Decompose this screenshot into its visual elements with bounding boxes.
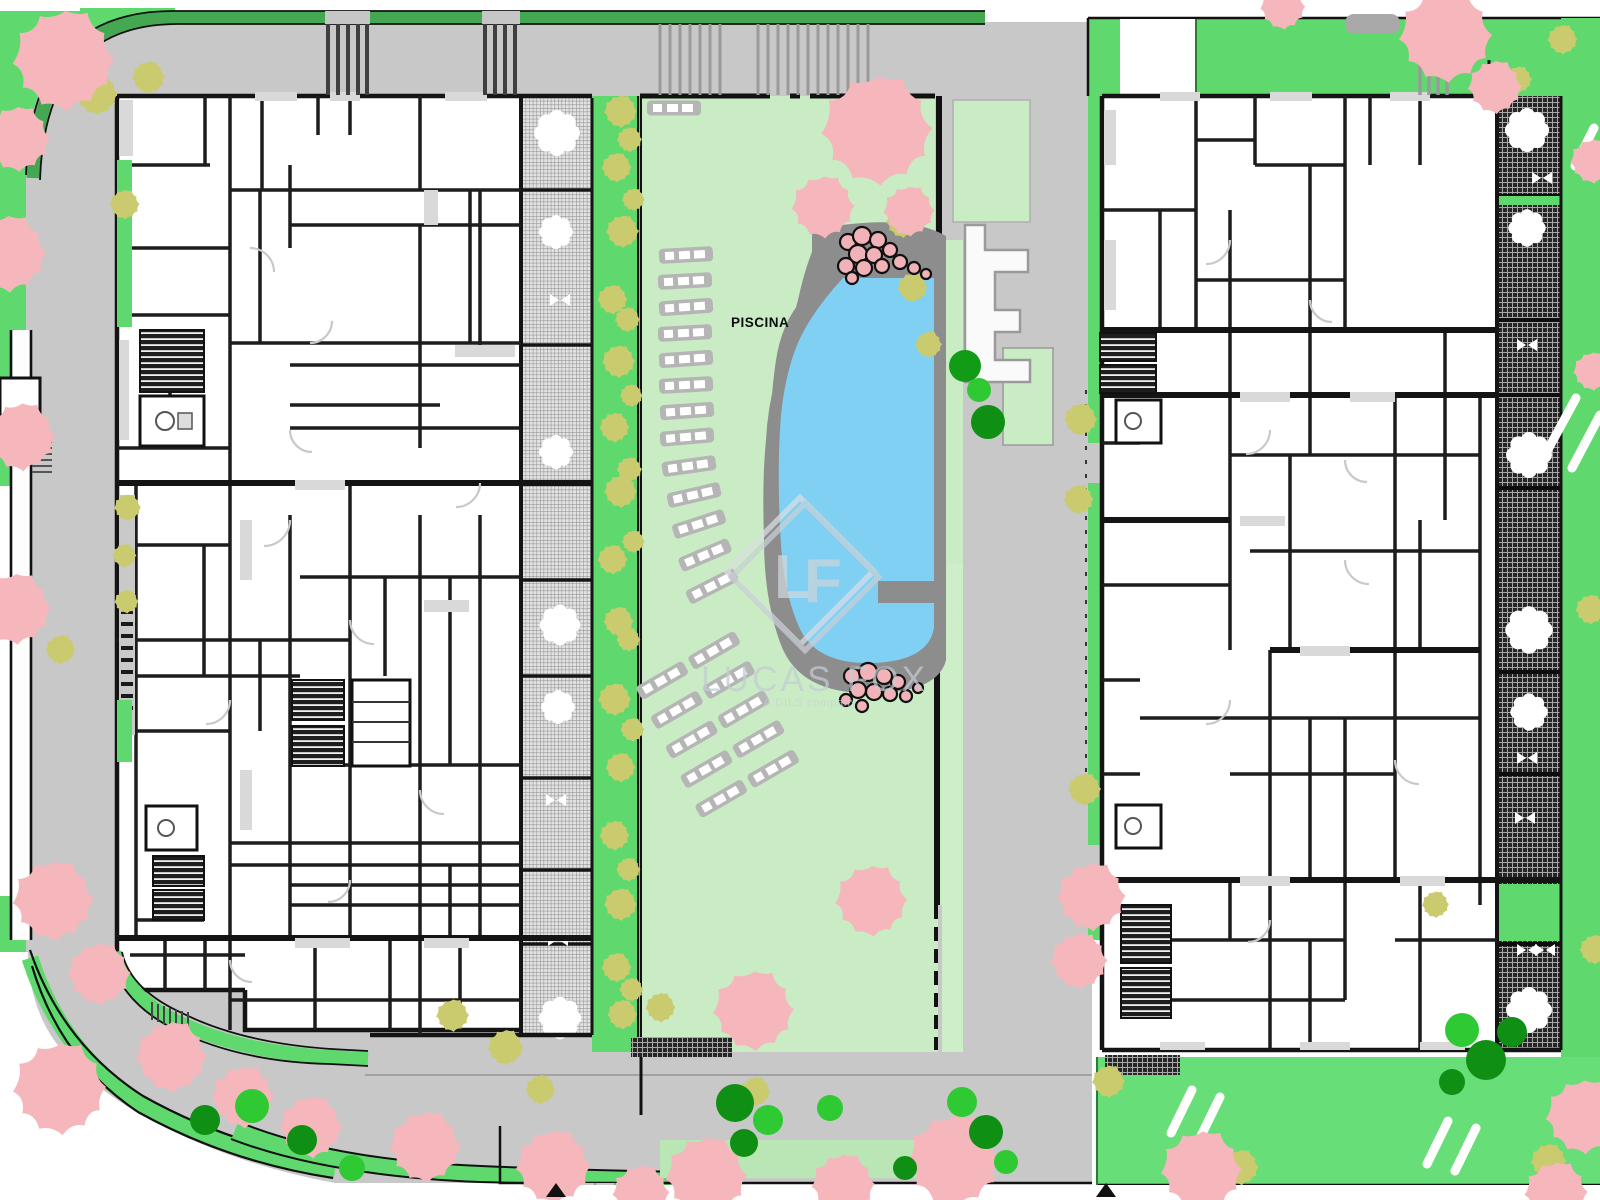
svg-text:A DILS company: A DILS company bbox=[764, 697, 857, 709]
svg-text:PISCINA: PISCINA bbox=[731, 315, 789, 330]
svg-text:F: F bbox=[804, 547, 842, 616]
svg-text:LUCAS FOX: LUCAS FOX bbox=[701, 660, 928, 699]
